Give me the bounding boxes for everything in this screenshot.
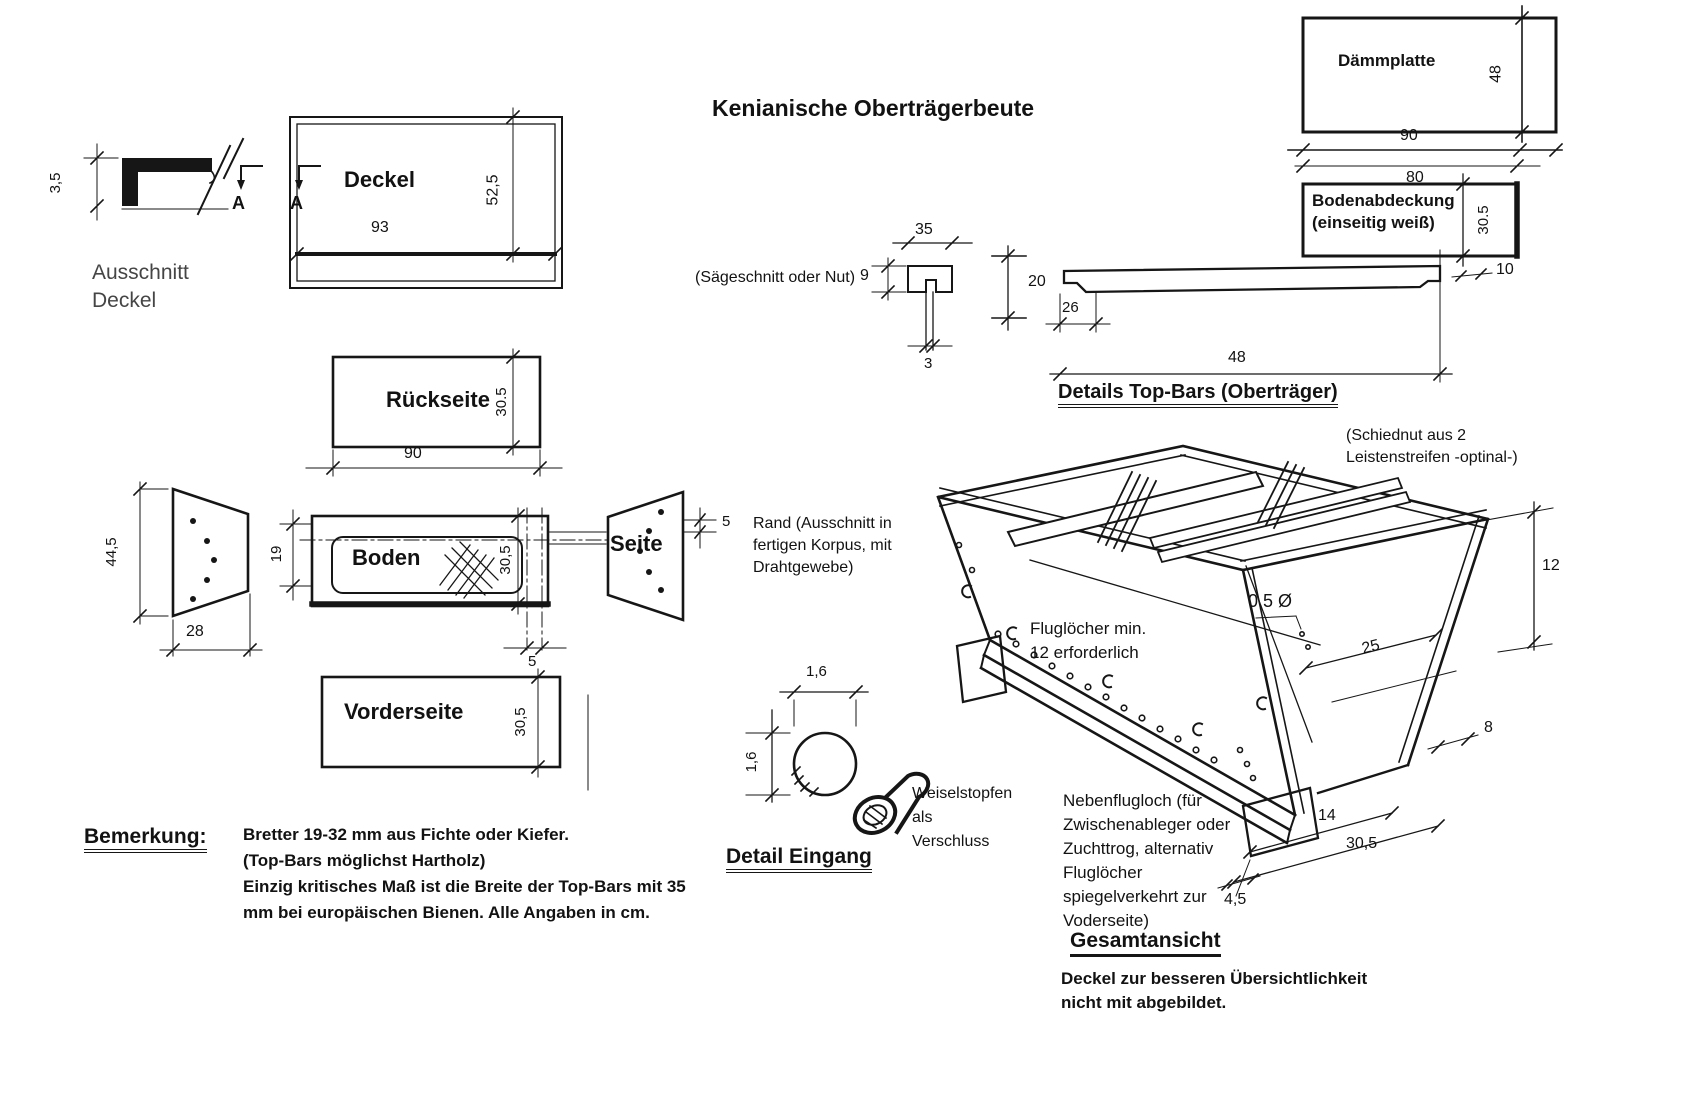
side-panel-drawing	[608, 492, 716, 620]
entrance-dim-height: 1,6	[744, 752, 760, 773]
top-bar-drawing	[872, 237, 1492, 382]
front-panel-drawing	[322, 669, 588, 790]
floor-cover-label-line2: (einseitig weiß)	[1312, 214, 1435, 232]
cover-section-dim-thickness: 3,5	[48, 173, 64, 194]
entrance-heading: Detail Eingang	[726, 846, 872, 868]
overview-side-note-line3: Zuchttrog, alternativ	[1063, 840, 1213, 858]
overview-side-note-line2: Zwischenableger oder	[1063, 816, 1230, 834]
top-bar-dim-tab: 10	[1496, 262, 1514, 279]
entrance-plug-line1: Weiselstopfen	[912, 786, 1012, 803]
insulation-label: Dämmplatte	[1338, 52, 1435, 70]
overview-dim-8: 8	[1484, 720, 1493, 737]
side-panel-dim-rim: 5	[722, 514, 730, 530]
overview-holes-note-line1: Fluglöcher min.	[1030, 620, 1146, 638]
overview-drawing	[938, 446, 1553, 896]
cover-drawing	[237, 108, 562, 288]
page-title: Kenianische Oberträgerbeute	[712, 96, 1034, 120]
top-bar-dim-thickness: 9	[860, 268, 869, 285]
insulation-dim-length-inner: 80	[1406, 170, 1424, 187]
cover-dim-width: 52,5	[486, 174, 503, 205]
overview-slide-note-line2: Leistenstreifen -optinal-)	[1346, 450, 1518, 467]
cover-section-caption-line1: Ausschnitt	[92, 262, 189, 284]
back-panel-dim-length: 90	[404, 446, 422, 463]
back-panel-dim-height: 30.5	[494, 387, 510, 416]
bottom-panel-dim-height: 30,5	[498, 545, 514, 574]
overview-dim-length: 30,5	[1346, 836, 1377, 853]
overview-dim-45: 4,5	[1224, 892, 1246, 909]
rim-note-line3: Drahtgewebe)	[753, 560, 854, 577]
insulation-dim-width: 48	[1489, 65, 1506, 83]
top-bar-dim-kerf: 3	[924, 356, 932, 372]
overview-footer-line1: Deckel zur besseren Übersichtlichkeit	[1061, 970, 1367, 988]
top-bar-dim-end: 26	[1062, 300, 1079, 316]
overview-holes-note-line2: 12 erforderlich	[1030, 644, 1139, 662]
bottom-panel-dim-slot: 19	[269, 546, 285, 563]
cover-section-caption-line2: Deckel	[92, 290, 156, 312]
overview-dim-depth: 12	[1542, 558, 1560, 575]
front-panel-dim-height: 30,5	[513, 707, 529, 736]
entrance-plug-line2: als	[912, 810, 932, 827]
overview-footer-line2: nicht mit abgebildet.	[1061, 994, 1226, 1012]
beehive-technical-drawing: Kenianische Oberträgerbeute 3,5 Ausschni…	[0, 0, 1696, 1118]
side-blank-dim-height: 44,5	[104, 537, 120, 566]
entrance-heading-text: Detail Eingang	[726, 845, 872, 873]
overview-side-note-line5: spiegelverkehrt zur	[1063, 888, 1207, 906]
remark-line3: Einzig kritisches Maß ist die Breite der…	[243, 878, 686, 896]
bottom-panel-dim-rim: 5	[528, 654, 536, 670]
remark-line1: Bretter 19-32 mm aus Fichte oder Kiefer.	[243, 826, 569, 844]
back-panel-label: Rückseite	[386, 388, 490, 411]
top-bar-dim-height: 20	[1028, 274, 1046, 291]
remark-heading-text: Bemerkung:	[84, 825, 207, 853]
overview-heading-text: Gesamtansicht	[1070, 929, 1221, 957]
overview-side-note-line6: Voderseite)	[1063, 912, 1149, 930]
section-marker-a-right: A	[290, 194, 303, 213]
section-marker-a-left: A	[232, 194, 245, 213]
front-panel-label: Vorderseite	[344, 700, 463, 723]
entrance-plug-line3: Verschluss	[912, 834, 989, 851]
entrance-dim-width: 1,6	[806, 664, 827, 680]
top-bar-saw-note: (Sägeschnitt oder Nut)	[695, 270, 855, 287]
top-bar-dim-width: 35	[915, 222, 933, 239]
floor-cover-label-line1: Bodenabdeckung	[1312, 192, 1455, 210]
overview-heading: Gesamtansicht	[1070, 930, 1221, 952]
top-bar-heading: Details Top-Bars (Oberträger)	[1058, 382, 1338, 403]
back-panel-drawing	[306, 349, 562, 476]
side-blank-dim-bottom: 28	[186, 624, 204, 641]
overview-slide-note-line1: (Schiednut aus 2	[1346, 428, 1466, 445]
overview-dim-hole: 0,5 Ø	[1248, 592, 1292, 611]
cover-label: Deckel	[344, 168, 415, 191]
overview-side-note-line1: Nebenflugloch (für	[1063, 792, 1202, 810]
cover-dim-length: 93	[371, 220, 389, 237]
bottom-panel-label: Boden	[352, 546, 420, 569]
top-bar-dim-length: 48	[1228, 350, 1246, 367]
overview-dim-14: 14	[1318, 808, 1336, 825]
overview-side-note-line4: Fluglöcher	[1063, 864, 1142, 882]
top-bar-heading-text: Details Top-Bars (Oberträger)	[1058, 381, 1338, 408]
cover-section-drawing	[84, 139, 243, 220]
remark-line2: (Top-Bars möglichst Hartholz)	[243, 852, 485, 870]
remark-line4: mm bei europäischen Bienen. Alle Angaben…	[243, 904, 650, 922]
insulation-drawing	[1288, 6, 1562, 172]
rim-note-line2: fertigen Korpus, mit	[753, 538, 892, 555]
bottom-panel-drawing	[280, 508, 612, 654]
insulation-dim-length-outer: 90	[1400, 128, 1418, 145]
remark-heading: Bemerkung:	[84, 826, 207, 848]
rim-note-line1: Rand (Ausschnitt in	[753, 516, 892, 533]
side-panel-label: Seite	[610, 532, 663, 555]
entrance-drawing	[746, 686, 928, 840]
floor-cover-dim-height: 30.5	[1476, 205, 1492, 234]
